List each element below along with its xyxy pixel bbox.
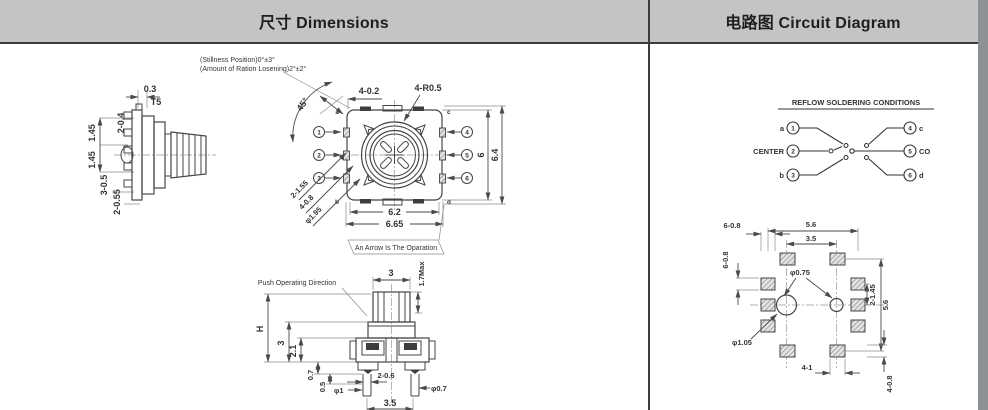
- pcb-dim-phi-1-05: φ1.05: [732, 338, 752, 347]
- dim-t5: T5: [151, 97, 162, 107]
- pin-callouts-left: 1 2 3: [314, 127, 342, 184]
- pin-1-number: 1: [317, 130, 321, 137]
- dim-3-0-5: 3-0.5: [99, 175, 109, 196]
- push-view-drawing: Push Operating Direction 3 1.7Max: [255, 261, 447, 410]
- push-direction-label: Push Operating Direction: [258, 280, 336, 287]
- dim-2-1: 2.1: [288, 345, 298, 358]
- sch-pin-4: 4: [908, 126, 912, 133]
- stillness-note-line1: (Stillness Position)0°±3°: [200, 56, 275, 64]
- pin-2-number: 2: [317, 153, 321, 160]
- page-edge-strip: [978, 0, 988, 410]
- side-view-drawing: 0.3 T5 2-0.4 1.45 1.45 3-0.5 2-0.55: [87, 84, 216, 215]
- sch-label-d: d: [919, 171, 924, 180]
- pcb-dim-6-0-8-left: 6-0.8: [721, 251, 730, 268]
- dim-phi-0-7: φ0.7: [431, 384, 447, 393]
- dim-3-side: 3: [276, 340, 286, 345]
- stillness-note-line2: (Amount of Ration Losening)2°±2°: [200, 65, 307, 73]
- dim-1-45-a: 1.45: [87, 124, 97, 142]
- schematic: REFLOW SOLDERING CONDITIONS 1 2 3 4 5 6 …: [753, 98, 934, 181]
- circuit-drawing: REFLOW SOLDERING CONDITIONS 1 2 3 4 5 6 …: [650, 44, 978, 410]
- sch-label-b: b: [779, 171, 784, 180]
- dim-6: 6: [476, 152, 486, 157]
- dim-0-7: 0.7: [306, 370, 315, 380]
- sch-pin-1: 1: [791, 126, 795, 133]
- dim-6-4: 6.4: [490, 149, 500, 162]
- circuit-header-cell: 电路图 Circuit Diagram: [648, 0, 978, 42]
- dimensions-drawing: (Stillness Position)0°±3° (Amount of Rat…: [0, 44, 648, 410]
- dim-6-65: 6.65: [386, 219, 404, 229]
- pcb-dim-6-0-8-top: 6-0.8: [723, 221, 740, 230]
- pcb-dim-4-1: 4-1: [802, 363, 813, 372]
- dim-1-45-b: 1.45: [87, 151, 97, 169]
- dim-2-0-55: 2-0.55: [112, 189, 122, 215]
- column-divider: [648, 0, 650, 410]
- pcb-dim-4-0-8: 4-0.8: [885, 375, 894, 392]
- dimensions-header-cell: 尺寸 Dimensions: [0, 0, 648, 42]
- sch-pin-2: 2: [791, 149, 795, 156]
- pcb-dim-3-5: 3.5: [806, 234, 816, 243]
- sch-pin-6: 6: [908, 173, 912, 180]
- sch-label-a: a: [780, 124, 785, 133]
- sch-label-co: CO: [919, 147, 930, 156]
- datasheet-page: 尺寸 Dimensions 电路图 Circuit Diagram (Still…: [0, 0, 988, 410]
- pcb-dim-phi-0-75: φ0.75: [790, 268, 810, 277]
- dim-h: H: [255, 326, 265, 333]
- sch-label-center: CENTER: [753, 147, 784, 156]
- pin-5-number: 5: [465, 153, 469, 160]
- circuit-title: 电路图 Circuit Diagram: [725, 9, 900, 33]
- pin-callouts-right: 4 5 6: [447, 127, 473, 184]
- dim-phi-1: φ1: [334, 386, 344, 395]
- pin-6-number: 6: [465, 176, 469, 183]
- table-header-row: 尺寸 Dimensions 电路图 Circuit Diagram: [0, 0, 978, 44]
- dim-0-3: 0.3: [144, 84, 157, 94]
- sch-pin-3: 3: [791, 173, 795, 180]
- sch-label-c: c: [919, 124, 923, 133]
- dim-3-5: 3.5: [384, 398, 397, 408]
- land-pattern: 6-0.8 5.6 3.5 6-0.8 φ0.75 φ1.05 2-1.45: [721, 220, 894, 393]
- dim-4-r0-5: 4-R0.5: [414, 83, 441, 93]
- pin-4-number: 4: [465, 130, 469, 137]
- dim-2-0-6: 2-0.6: [377, 371, 394, 380]
- dim-45-deg: 45°: [295, 96, 311, 113]
- dimensions-title: 尺寸 Dimensions: [259, 9, 389, 33]
- dim-3-top: 3: [388, 268, 393, 278]
- dim-6-2: 6.2: [388, 207, 401, 217]
- reflow-title: REFLOW SOLDERING CONDITIONS: [792, 98, 920, 107]
- pcb-dim-2-1-45: 2-1.45: [868, 284, 877, 305]
- pcb-dim-5-6-top: 5.6: [806, 220, 816, 229]
- dim-0-5: 0.5: [318, 382, 327, 392]
- sch-pin-5: 5: [908, 149, 912, 156]
- dim-4-0-2: 4-0.2: [359, 86, 380, 96]
- arrow-operation-note: An Arrow Is The Oparation: [355, 245, 437, 252]
- pcb-dim-5-6-right: 5.6: [881, 300, 890, 310]
- top-view-drawing: a c b d 1 2 3 4 5: [289, 82, 506, 254]
- dim-1-7max: 1.7Max: [417, 261, 426, 287]
